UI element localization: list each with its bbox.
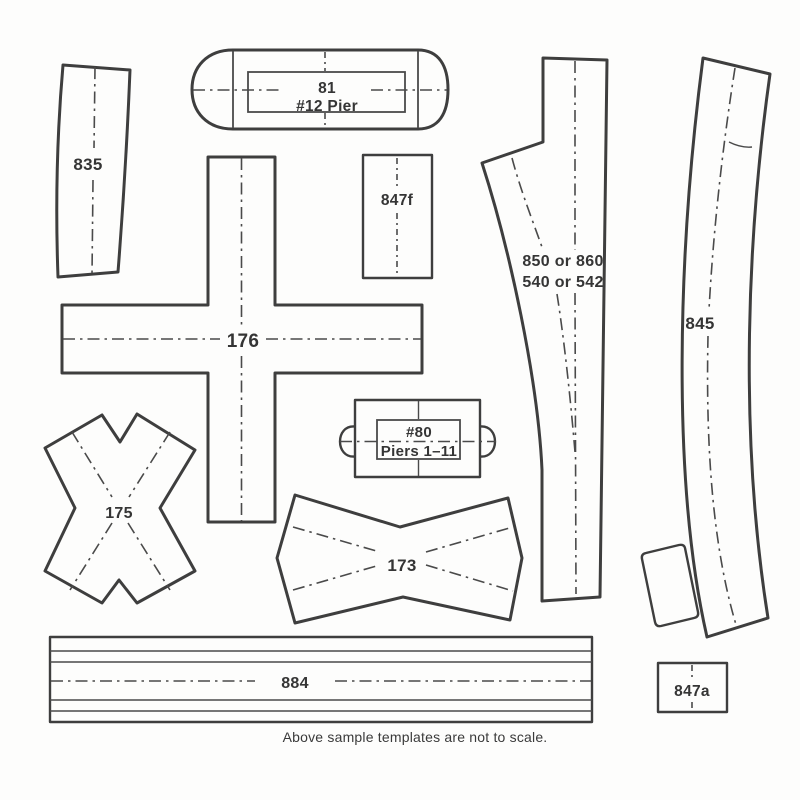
template-847a: 847a — [658, 663, 727, 712]
template-884-strip: 884 — [50, 637, 592, 722]
t884-outline — [50, 637, 592, 722]
t176-label: 176 — [227, 331, 260, 352]
template-845: 845 — [642, 58, 770, 637]
turnout-label-line1: 850 or 860 — [522, 253, 603, 270]
t845-tab-outline — [642, 545, 698, 626]
sheet-caption: Above sample templates are not to scale. — [283, 729, 548, 745]
pier81-label-line1: 81 — [318, 80, 336, 97]
t845-label: 845 — [685, 314, 714, 333]
turnout-main-center-line — [575, 61, 576, 594]
turnout-outline — [482, 58, 607, 601]
template-847f: 847f — [363, 155, 432, 278]
template-176-cross: 176 — [62, 157, 422, 522]
template-175-crossing: 175 — [45, 414, 195, 603]
t173-label: 173 — [387, 556, 416, 575]
pier80-label-line1: #80 — [406, 424, 432, 441]
t845-outline — [682, 58, 770, 637]
t845-edge-tick — [729, 142, 752, 147]
t835-label: 835 — [73, 155, 102, 174]
t175-label: 175 — [105, 505, 133, 522]
pier80-label-line2: Piers 1–11 — [381, 443, 457, 460]
template-81-pier: 81 #12 Pier — [192, 50, 448, 129]
template-sheet-page: 81 #12 Pier 835 847f 850 or 860 540 or 5… — [0, 0, 800, 800]
template-850-860-turnout: 850 or 860 540 or 542 — [482, 58, 607, 601]
t847f-label: 847f — [381, 192, 414, 209]
templates-diagram: 81 #12 Pier 835 847f 850 or 860 540 or 5… — [0, 0, 800, 800]
template-173-crossing: 173 — [277, 495, 522, 623]
turnout-label-line2: 540 or 542 — [522, 274, 603, 291]
t847a-label: 847a — [674, 683, 710, 700]
t845-center-line — [708, 68, 737, 628]
pier81-label-line2: #12 Pier — [296, 98, 358, 115]
template-80-piers: #80 Piers 1–11 — [340, 400, 496, 477]
t884-label: 884 — [281, 675, 309, 692]
turnout-diverging-center-line — [512, 158, 575, 452]
template-835: 835 — [57, 65, 130, 277]
